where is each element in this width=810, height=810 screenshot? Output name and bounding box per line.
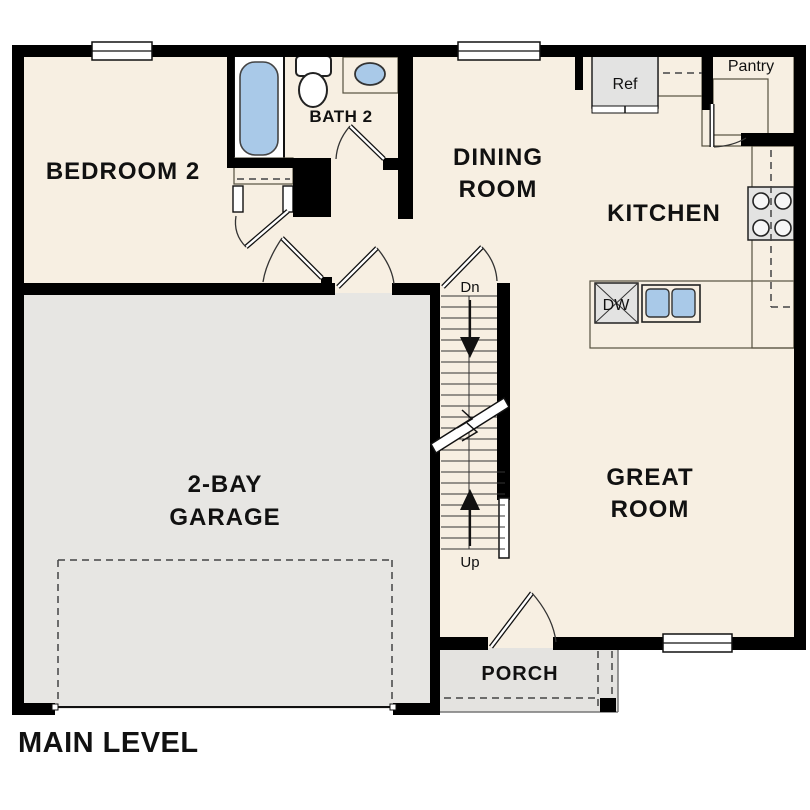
dishwasher-label: DW xyxy=(603,297,631,314)
great-room-bottom-wall xyxy=(553,637,663,650)
dining-room-label-line2: ROOM xyxy=(459,176,538,203)
garage-label-line2: GARAGE xyxy=(169,504,280,531)
porch-label: PORCH xyxy=(481,663,558,685)
window-bedroom xyxy=(92,42,152,60)
bathtub xyxy=(234,55,284,162)
great-room-bottom-wall xyxy=(732,637,794,650)
exterior-wall-left xyxy=(12,45,24,715)
dining-room-label-line1: DINING xyxy=(453,144,543,171)
floor-plan-svg: BEDROOM 2 BATH 2 DINING ROOM KITCHEN GRE… xyxy=(0,0,810,810)
burner xyxy=(775,193,791,209)
great-room-label-line1: GREAT xyxy=(606,464,693,491)
garage-label-line1: 2-BAY xyxy=(188,471,263,498)
bedroom-bath-wall xyxy=(227,53,234,162)
bedroom-2-label: BEDROOM 2 xyxy=(46,158,200,185)
floor-plan-page: BEDROOM 2 BATH 2 DINING ROOM KITCHEN GRE… xyxy=(0,0,810,810)
window-great-room xyxy=(663,634,732,652)
closet-jamb xyxy=(233,186,243,212)
stairs-up-label: Up xyxy=(460,554,479,571)
main-level-title: MAIN LEVEL xyxy=(18,727,199,759)
pantry-wall-stub xyxy=(702,53,713,110)
stairs-down-label: Dn xyxy=(460,279,479,296)
bath-bottom-wall xyxy=(227,158,293,168)
dining-divider-wall xyxy=(398,45,413,219)
closet-jamb xyxy=(283,186,293,212)
hall-wall-block xyxy=(293,158,331,217)
ref-label: Ref xyxy=(613,76,638,93)
stair-right-wall xyxy=(497,283,510,500)
garage-top-wall xyxy=(12,283,335,295)
toilet xyxy=(296,56,331,107)
burner xyxy=(775,220,791,236)
great-room-label-line2: ROOM xyxy=(611,496,690,523)
stair-left-wall xyxy=(430,283,440,715)
door-hinge-nub xyxy=(321,277,332,295)
kitchen-wall-stub xyxy=(575,45,583,90)
garage-floor xyxy=(24,293,432,709)
pantry-bottom-wall xyxy=(741,133,794,146)
porch-post xyxy=(600,698,616,712)
bath-2-label: BATH 2 xyxy=(309,107,372,126)
window-dining xyxy=(458,42,540,60)
kitchen-label: KITCHEN xyxy=(607,200,721,227)
burner xyxy=(753,220,769,236)
burner xyxy=(753,193,769,209)
garage-bottom-wall xyxy=(12,703,55,715)
exterior-wall-right xyxy=(794,45,806,650)
pantry-label: Pantry xyxy=(728,58,774,75)
bath-door-corner xyxy=(383,158,398,170)
